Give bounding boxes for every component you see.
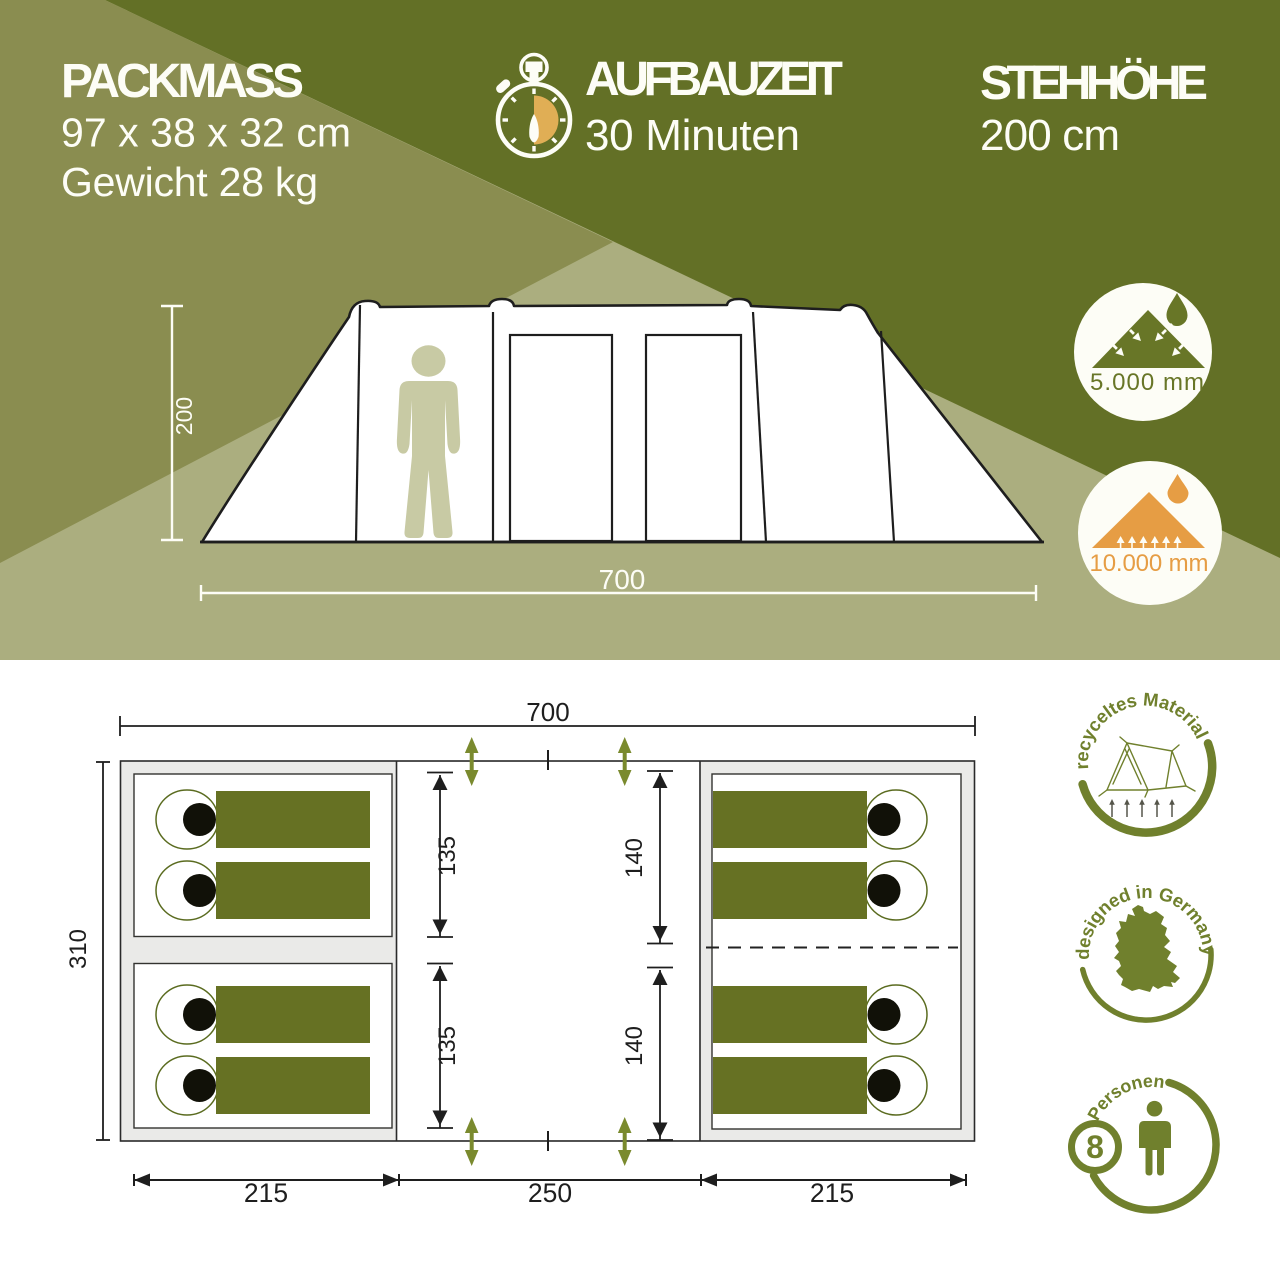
svg-text:135: 135	[434, 836, 461, 876]
svg-text:97 x 38 x 32 cm: 97 x 38 x 32 cm	[61, 110, 351, 156]
svg-text:200: 200	[171, 397, 197, 435]
svg-text:30 Minuten: 30 Minuten	[585, 111, 800, 160]
svg-text:200 cm: 200 cm	[980, 111, 1120, 160]
svg-text:215: 215	[810, 1178, 854, 1208]
svg-text:140: 140	[621, 1026, 648, 1066]
svg-text:10.000 mm: 10.000 mm	[1090, 550, 1209, 577]
svg-text:5.000 mm: 5.000 mm	[1090, 369, 1204, 396]
svg-text:PACKMASS: PACKMASS	[61, 55, 304, 108]
svg-text:AUFBAUZEIT: AUFBAUZEIT	[585, 53, 843, 106]
svg-text:8: 8	[1086, 1129, 1104, 1165]
svg-text:140: 140	[621, 838, 648, 878]
svg-text:250: 250	[528, 1178, 572, 1208]
svg-text:215: 215	[244, 1178, 288, 1208]
svg-text:135: 135	[434, 1026, 461, 1066]
svg-text:STEHHÖHE: STEHHÖHE	[980, 57, 1208, 110]
svg-text:700: 700	[599, 564, 646, 595]
svg-text:Gewicht 28 kg: Gewicht 28 kg	[61, 159, 318, 205]
svg-text:310: 310	[65, 929, 92, 969]
svg-text:700: 700	[526, 697, 569, 727]
